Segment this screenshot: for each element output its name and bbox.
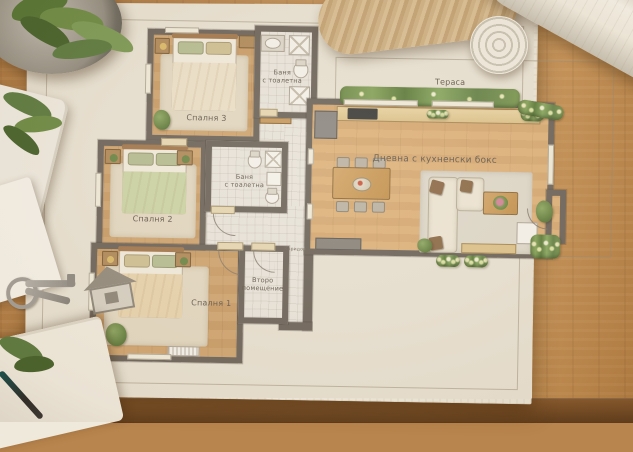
dining-chair (372, 202, 385, 213)
bath-middle-label: Баня с тоалетна (224, 173, 264, 191)
blanket (172, 62, 237, 111)
fruit-bowl-icon (352, 177, 371, 191)
bedroom1-door-gap (217, 242, 243, 250)
bedroom3-bed (172, 36, 237, 111)
bedroom3-label: Спалня 3 (186, 113, 226, 124)
house-keychain (78, 261, 146, 321)
dining-chair (336, 201, 349, 212)
living-door-gap (307, 203, 313, 219)
bedroom3-nightstand (155, 38, 170, 54)
plant-icon (110, 154, 118, 162)
bedroom3-window-left (145, 64, 152, 94)
bath-top-door-gap (260, 109, 278, 117)
second-room-label-line2: помещение (242, 284, 284, 293)
bath-top-label-line2: с тоалетна (262, 77, 302, 86)
living-window-right (547, 145, 554, 185)
living-label: Дневна с кухненски бокс (373, 154, 498, 168)
living-door-gap (308, 148, 314, 164)
potted-plant-icon (153, 110, 170, 130)
bedroom1-label: Спалня 1 (191, 298, 231, 309)
pillow (177, 41, 203, 54)
bidet-icon (265, 191, 279, 204)
bedroom2-door-gap (161, 138, 187, 146)
dining-chair (354, 201, 367, 212)
keychain-window-icon (104, 291, 119, 304)
bedroom1-window-bottom (127, 353, 171, 360)
sideboard (461, 243, 516, 254)
potted-plant-icon (105, 323, 126, 346)
key-teeth (67, 274, 75, 286)
cooktop-icon (347, 108, 377, 120)
lamp-icon (160, 43, 167, 50)
bedroom2-nightstand (105, 149, 121, 164)
corridor-label: Коридор (284, 247, 306, 253)
entry-planter (464, 255, 488, 267)
plant-icon (182, 155, 190, 163)
bedroom3-window (165, 27, 199, 34)
counter-plants (427, 110, 449, 119)
shower-icon (289, 35, 310, 55)
bedroom2-nightstand (177, 150, 193, 165)
entry-planter-corner (530, 234, 560, 259)
bedroom2-window-left (95, 173, 102, 207)
blanket (122, 171, 187, 214)
lamp-icon (107, 256, 114, 263)
shower-icon (265, 151, 282, 168)
washbasin-cabinet (266, 172, 281, 186)
bedroom1-nightstand (175, 252, 191, 267)
corridor-right-wall (303, 250, 313, 330)
sofa-pillow (459, 179, 473, 193)
terrace-label: Тераса (435, 77, 465, 88)
entry-planter (436, 255, 460, 267)
fridge-icon (314, 111, 337, 139)
bedroom2-label: Спалня 2 (133, 214, 173, 225)
tv-stand (315, 238, 361, 251)
sink-icon (265, 38, 281, 49)
plant-icon (180, 257, 188, 265)
living-window-top (344, 99, 418, 106)
pillow (206, 42, 232, 55)
second-room-label: Второ помещение (242, 276, 284, 294)
living-window-top (432, 101, 494, 108)
ac-unit (167, 346, 199, 357)
headboard (172, 33, 238, 39)
potted-plant-icon (417, 238, 432, 252)
bath-middle-door-gap (211, 206, 235, 214)
pillow (127, 152, 153, 165)
headboard (118, 246, 184, 252)
second-room-door-gap (251, 242, 275, 250)
bath-top-label: Баня с тоалетна (262, 68, 302, 86)
bath-middle-label-line2: с тоалетна (224, 181, 264, 190)
